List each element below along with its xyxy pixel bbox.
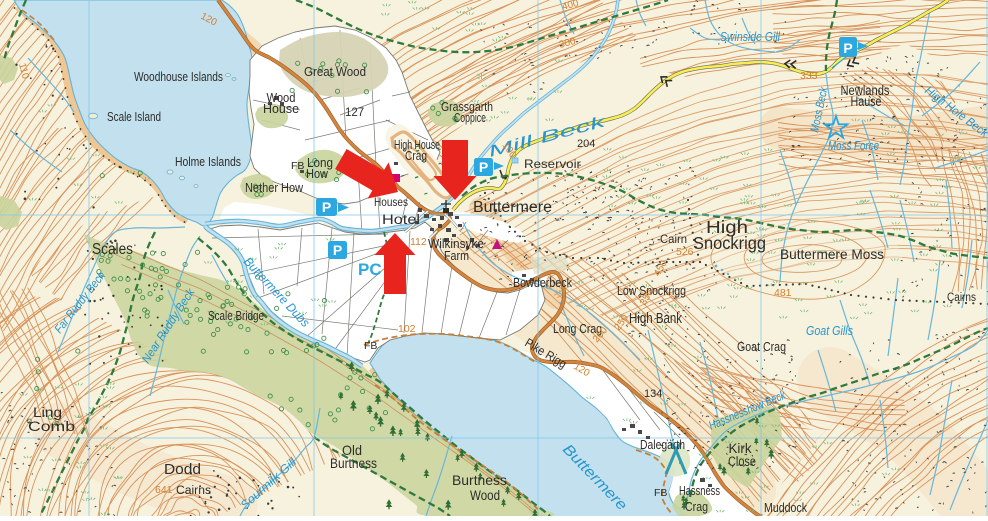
svg-text:Cairn: Cairn bbox=[660, 234, 687, 246]
svg-text:134: 134 bbox=[644, 388, 662, 400]
svg-text:Hassness: Hassness bbox=[679, 484, 720, 498]
svg-text:Close: Close bbox=[728, 454, 756, 469]
svg-text:Scale Island: Scale Island bbox=[107, 110, 161, 124]
svg-text:Bowderbeck: Bowderbeck bbox=[513, 276, 573, 290]
svg-text:Woodhouse Islands: Woodhouse Islands bbox=[134, 70, 223, 84]
svg-text:204: 204 bbox=[577, 138, 595, 150]
svg-text:FB: FB bbox=[654, 487, 667, 499]
svg-text:P: P bbox=[843, 40, 852, 56]
svg-text:333: 333 bbox=[800, 70, 818, 82]
svg-text:How: How bbox=[306, 167, 329, 181]
svg-text:Muddock: Muddock bbox=[764, 500, 807, 515]
svg-text:641: 641 bbox=[155, 484, 173, 496]
svg-text:Comb: Comb bbox=[28, 419, 75, 434]
svg-text:Houses: Houses bbox=[374, 195, 408, 209]
svg-text:481: 481 bbox=[774, 287, 792, 299]
svg-text:Hause: Hause bbox=[851, 94, 882, 109]
svg-text:Hotel: Hotel bbox=[382, 212, 420, 227]
svg-text:Cairns: Cairns bbox=[176, 485, 211, 497]
svg-text:P: P bbox=[322, 199, 331, 215]
svg-text:112: 112 bbox=[410, 236, 427, 248]
svg-text:Coppice: Coppice bbox=[454, 111, 486, 125]
svg-text:Dalegarth: Dalegarth bbox=[640, 438, 685, 452]
svg-text:Burtness: Burtness bbox=[452, 472, 507, 488]
svg-text:Crag: Crag bbox=[685, 499, 708, 514]
svg-text:House: House bbox=[263, 102, 299, 116]
svg-text:Great Wood: Great Wood bbox=[304, 64, 366, 79]
svg-text:Scales: Scales bbox=[92, 241, 133, 258]
svg-text:Cairns: Cairns bbox=[947, 292, 976, 304]
svg-text:Goat Gills: Goat Gills bbox=[806, 324, 853, 338]
svg-text:Crag: Crag bbox=[405, 149, 427, 163]
svg-text:Ling: Ling bbox=[33, 405, 62, 420]
svg-text:Reservoir: Reservoir bbox=[524, 157, 581, 171]
svg-text:Scale Bridge: Scale Bridge bbox=[208, 309, 264, 323]
svg-text:Snockrigg: Snockrigg bbox=[693, 233, 766, 253]
svg-text:526: 526 bbox=[676, 246, 694, 258]
svg-text:Wood: Wood bbox=[470, 487, 500, 503]
svg-text:Buttermere Moss: Buttermere Moss bbox=[780, 246, 884, 262]
svg-text:Dodd: Dodd bbox=[164, 462, 201, 478]
svg-text:FB: FB bbox=[364, 340, 377, 352]
svg-text:102: 102 bbox=[398, 323, 416, 335]
svg-text:Farm: Farm bbox=[444, 248, 469, 263]
svg-text:FB: FB bbox=[291, 160, 304, 172]
svg-text:Nether How: Nether How bbox=[245, 181, 304, 195]
svg-text:Burtness: Burtness bbox=[330, 455, 377, 471]
svg-text:PC: PC bbox=[358, 260, 382, 279]
svg-text:P: P bbox=[333, 242, 342, 258]
svg-text:127: 127 bbox=[345, 107, 364, 119]
svg-text:Holme Islands: Holme Islands bbox=[175, 155, 241, 169]
svg-text:Moss Force: Moss Force bbox=[828, 138, 879, 153]
svg-text:Swinside Gill: Swinside Gill bbox=[720, 30, 781, 44]
svg-text:Goat Crag: Goat Crag bbox=[737, 340, 786, 354]
svg-text:Buttermere: Buttermere bbox=[473, 199, 552, 216]
svg-text:P: P bbox=[479, 159, 488, 175]
svg-text:High Bank: High Bank bbox=[629, 311, 683, 327]
